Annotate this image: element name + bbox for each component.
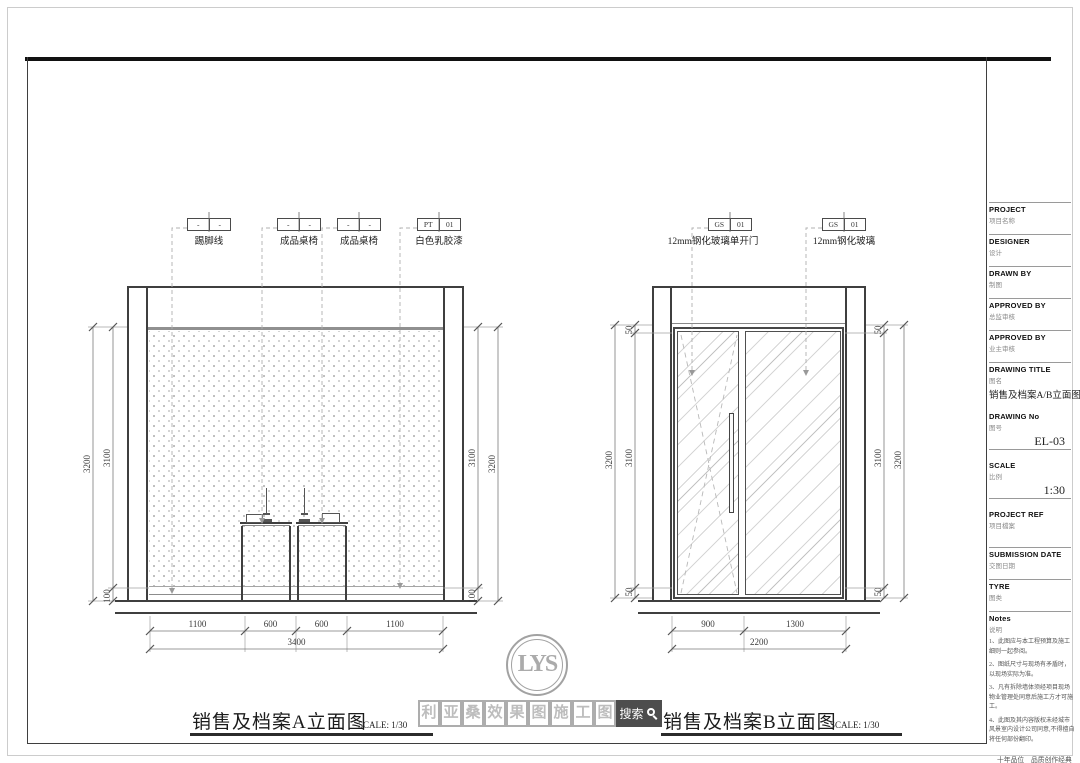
dim-label: 3100 <box>624 444 634 472</box>
floor-slab-line <box>638 612 880 614</box>
field-project-ref: PROJECT REF 项目檔案 <box>989 508 1071 530</box>
frame-left-line <box>27 57 28 743</box>
watermark-char: 果 <box>506 700 528 727</box>
material-tag: PT 01 <box>417 218 461 231</box>
notes-label-en: Notes <box>989 614 1071 623</box>
elevation-b-scale: SCALE: 1/30 <box>830 720 879 730</box>
field-project: PROJECT 项目名称 <box>989 202 1071 225</box>
candlestick-base <box>299 519 310 522</box>
magnifier-icon <box>646 707 659 720</box>
title-block: PROJECT 项目名称 DESIGNER 设计 DRAWN BY 制图 APP… <box>989 60 1077 763</box>
table-leg <box>289 526 291 601</box>
field-label-cn: 总监审核 <box>989 311 1071 321</box>
dim-label: 50 <box>624 578 634 606</box>
field-drawing-no: DRAWING No 图号 EL-03 <box>989 410 1071 450</box>
field-label-en: PROJECT <box>989 205 1071 214</box>
dim-label: 100 <box>467 582 477 610</box>
tag-label: 成品桌椅 <box>329 233 389 247</box>
elevation-a-title: 销售及档案A立面图 <box>192 707 367 734</box>
field-scale: SCALE 比例 1:30 <box>989 459 1071 499</box>
material-tag: GS 01 <box>822 218 866 231</box>
field-label-cn: 比例 <box>989 471 1071 481</box>
field-label-en: SUBMISSION DATE <box>989 550 1071 559</box>
field-label-cn: 设计 <box>989 247 1071 257</box>
ceiling-line <box>127 286 464 288</box>
wall-column-right-inner <box>443 286 445 601</box>
table-top-edge <box>298 525 346 526</box>
door-handle <box>729 413 734 513</box>
tag-label: 成品桌椅 <box>269 233 329 247</box>
wall-column-right <box>462 286 464 601</box>
field-label-cn: 项目檔案 <box>989 520 1071 530</box>
watermark-char: 图 <box>594 700 616 727</box>
wall-column-left-inner <box>146 286 148 601</box>
tag-code-right: - <box>210 219 231 230</box>
table-top-edge <box>242 525 290 526</box>
dim-label: 100 <box>102 582 112 610</box>
field-submission-date: SUBMISSION DATE 交图日期 <box>989 547 1071 570</box>
dim-label: 1300 <box>744 619 846 629</box>
candlestick-stem <box>266 488 267 515</box>
frame-bottom-line <box>27 743 987 744</box>
drawing-no-value: EL-03 <box>989 434 1071 450</box>
field-label-cn: 制图 <box>989 279 1071 289</box>
tag-code-right: - <box>300 219 321 230</box>
fixed-glass-panel <box>745 331 841 595</box>
field-label-cn: 图名 <box>989 375 1071 385</box>
ceiling-line <box>652 286 866 288</box>
dim-label: 3200 <box>82 450 92 478</box>
dim-label: 900 <box>672 619 744 629</box>
material-tag: - - <box>337 218 381 231</box>
skirting-top-line <box>149 586 443 587</box>
floor-line <box>638 600 880 602</box>
table-leg <box>345 526 347 601</box>
plate-stack <box>322 513 340 523</box>
dim-label: 50 <box>624 316 634 344</box>
candlestick-stem <box>304 488 305 515</box>
field-label-en: DESIGNER <box>989 237 1071 246</box>
dim-label: 50 <box>873 316 883 344</box>
wall-column-right-inner <box>845 286 847 601</box>
dim-label: 3200 <box>893 446 903 474</box>
field-approved-by-2: APPROVED BY 业主审核 <box>989 330 1071 353</box>
wall-column-right <box>864 286 866 601</box>
field-designer: DESIGNER 设计 <box>989 234 1071 257</box>
watermark-search-badge: 搜索 <box>616 700 662 727</box>
field-label-cn: 交图日期 <box>989 560 1071 570</box>
tag-code-left: - <box>188 219 210 230</box>
dim-label: 3100 <box>873 444 883 472</box>
tag-code-right: 01 <box>440 219 461 230</box>
dim-label: 1100 <box>150 619 245 629</box>
table-leg <box>297 526 299 601</box>
title-underline <box>661 733 902 736</box>
dim-label: 3100 <box>467 444 477 472</box>
wall-column-left <box>127 286 129 601</box>
beam-line <box>148 327 443 330</box>
material-tag: - - <box>187 218 231 231</box>
tag-label: 白色乳胶漆 <box>404 233 474 247</box>
field-label-en: SCALE <box>989 461 1071 470</box>
dim-label: 600 <box>296 619 347 629</box>
watermark-char: 工 <box>572 700 594 727</box>
elevation-a-scale: SCALE: 1/30 <box>358 720 407 730</box>
tag-code-right: - <box>360 219 381 230</box>
candlestick-base <box>261 519 272 522</box>
field-type: TYRE 图类 <box>989 579 1071 602</box>
frame-top-line <box>25 57 1051 61</box>
elevation-b-title: 销售及档案B立面图 <box>663 707 837 734</box>
wall-finish-texture <box>149 331 443 586</box>
watermark-char: 效 <box>484 700 506 727</box>
material-tag: - - <box>277 218 321 231</box>
floor-slab-line <box>115 612 477 614</box>
header-line <box>672 323 845 324</box>
field-label-en: DRAWING TITLE <box>989 365 1071 374</box>
watermark-char: 利 <box>418 700 440 727</box>
field-drawing-title: DRAWING TITLE 图名 销售及档案A/B立面图 <box>989 362 1071 401</box>
note-item: 1、此图应与本工程预算及施工细则一起参阅。 <box>989 638 1075 657</box>
dim-label: 3100 <box>102 444 112 472</box>
field-label-cn: 项目名称 <box>989 215 1071 225</box>
tag-label: 12mm钢化玻璃单开门 <box>658 233 768 247</box>
watermark-char: 图 <box>528 700 550 727</box>
wall-column-left-inner <box>670 286 672 601</box>
tag-code-right: 01 <box>731 219 752 230</box>
watermark-logo-text: LYS <box>506 651 568 678</box>
tag-code-left: GS <box>823 219 845 230</box>
tag-code-right: 01 <box>845 219 866 230</box>
tag-label: 踢脚线 <box>179 233 239 247</box>
note-item: 3、凡有拆除墙体须经项目现场物业管理处同意后施工方才可施工。 <box>989 684 1075 713</box>
dim-label: 3200 <box>487 450 497 478</box>
note-item: 2、图纸尺寸与现场有矛盾时，以现场实际为准。 <box>989 661 1075 680</box>
field-label-cn: 图号 <box>989 422 1071 432</box>
field-label-en: PROJECT REF <box>989 510 1071 519</box>
tag-code-left: - <box>278 219 300 230</box>
field-approved-by-1: APPROVED BY 总监审核 <box>989 298 1071 321</box>
field-label-en: DRAWING No <box>989 412 1071 421</box>
tag-code-left: - <box>338 219 360 230</box>
watermark-char: 施 <box>550 700 572 727</box>
dim-label: 3200 <box>604 446 614 474</box>
field-label-en: TYRE <box>989 582 1071 591</box>
field-drawn-by: DRAWN BY 制图 <box>989 266 1071 289</box>
drawing-sheet: - - - - - - PT 01 踢脚线 成品桌椅 成品桌椅 白色乳胶漆 32… <box>0 0 1080 763</box>
tag-code-left: PT <box>418 219 440 230</box>
candlestick-holder <box>301 513 308 515</box>
slogan-top: 十年品位 品质创作经典 <box>989 754 1077 763</box>
title-underline <box>190 733 433 736</box>
field-label-cn: 图类 <box>989 592 1071 602</box>
tag-label: 12mm钢化玻璃 <box>789 233 899 247</box>
dim-label: 2200 <box>672 637 846 647</box>
notes-label-cn: 说明 <box>989 624 1071 634</box>
note-item: 4、此图及其内容版权未经城市风景室内设计公司同意,不得擅自将任何部份翻印。 <box>989 717 1075 746</box>
wall-column-left <box>652 286 654 601</box>
drawing-title-value: 销售及档案A/B立面图 <box>989 387 1071 401</box>
dim-label: 1100 <box>347 619 443 629</box>
field-label-en: DRAWN BY <box>989 269 1071 278</box>
tag-code-left: GS <box>709 219 731 230</box>
material-tag: GS 01 <box>708 218 752 231</box>
notes-section: Notes 说明 1、此图应与本工程预算及施工细则一起参阅。 2、图纸尺寸与现场… <box>989 611 1071 745</box>
dim-label: 3400 <box>150 637 443 647</box>
watermark-search-label: 搜索 <box>619 705 643 722</box>
watermark-char: 亚 <box>440 700 462 727</box>
floor-line <box>115 600 477 602</box>
watermark-char: 桑 <box>462 700 484 727</box>
candlestick-holder <box>263 513 270 515</box>
field-label-cn: 业主审核 <box>989 343 1071 353</box>
titleblock-divider-line <box>986 57 987 743</box>
table-leg <box>241 526 243 601</box>
skirting-bottom-line <box>149 594 443 595</box>
scale-value: 1:30 <box>989 483 1071 499</box>
field-label-en: APPROVED BY <box>989 301 1071 310</box>
field-label-en: APPROVED BY <box>989 333 1071 342</box>
dim-label: 50 <box>873 578 883 606</box>
dim-label: 600 <box>245 619 296 629</box>
